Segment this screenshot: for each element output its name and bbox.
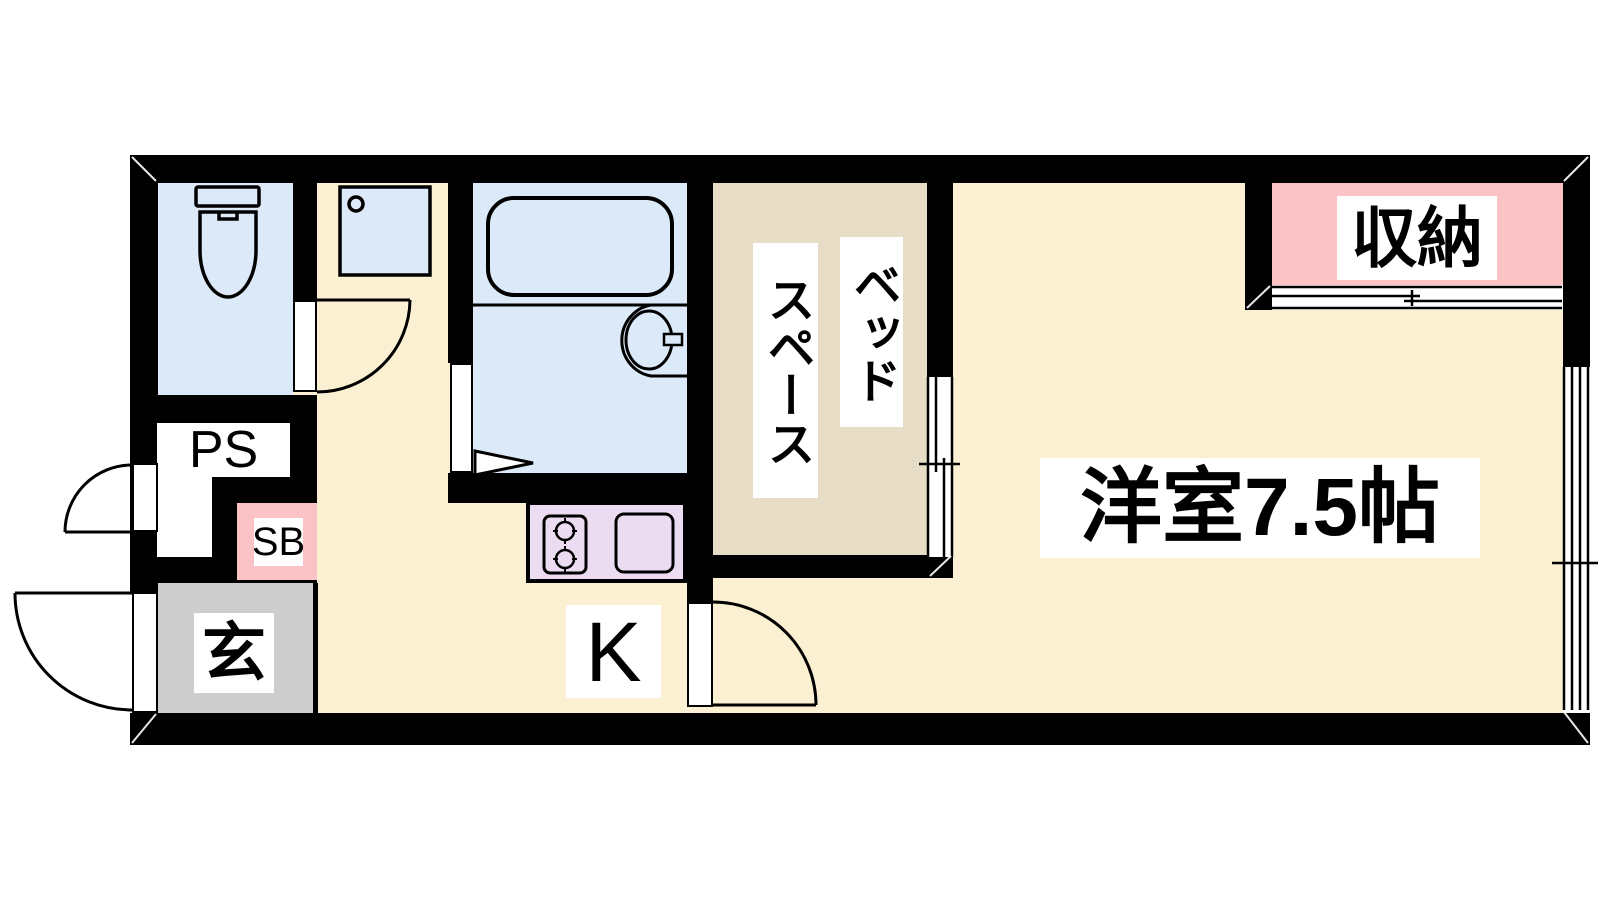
label-main-room: 洋室7.5帖: [1040, 458, 1480, 558]
kitchen-sink-icon: [616, 514, 673, 572]
label-bed-space-right-column: ベッド: [840, 237, 903, 427]
label-kitchen: K: [566, 605, 661, 698]
floorplan-canvas: PS SB 玄 K ベッド スペース 洋室7.5帖 収納: [0, 0, 1600, 900]
folding-door-bathroom-icon: [475, 451, 533, 475]
toilet-icon: [196, 187, 259, 297]
stove-icon: [544, 516, 586, 573]
window-icon: [1552, 367, 1598, 710]
label-bed-space-left-column: スペース: [753, 243, 818, 498]
door-swing-toilet-icon: [317, 300, 410, 392]
sliding-partition-bedspace-icon: [919, 377, 960, 557]
label-storage: 収納: [1337, 196, 1497, 280]
label-entrance: 玄: [194, 613, 274, 693]
door-swing-kitchen-icon: [713, 602, 816, 705]
sliding-door-closet-icon: [1272, 287, 1562, 308]
bathtub-icon: [488, 198, 672, 295]
door-swing-left-storage-icon: [65, 465, 132, 532]
label-shoe-box: SB: [254, 518, 303, 566]
label-pipe-space: PS: [157, 423, 290, 477]
bathroom-sink-icon: [473, 305, 687, 376]
washer-pan-icon: [340, 187, 430, 275]
door-swing-entrance-icon: [15, 593, 132, 710]
